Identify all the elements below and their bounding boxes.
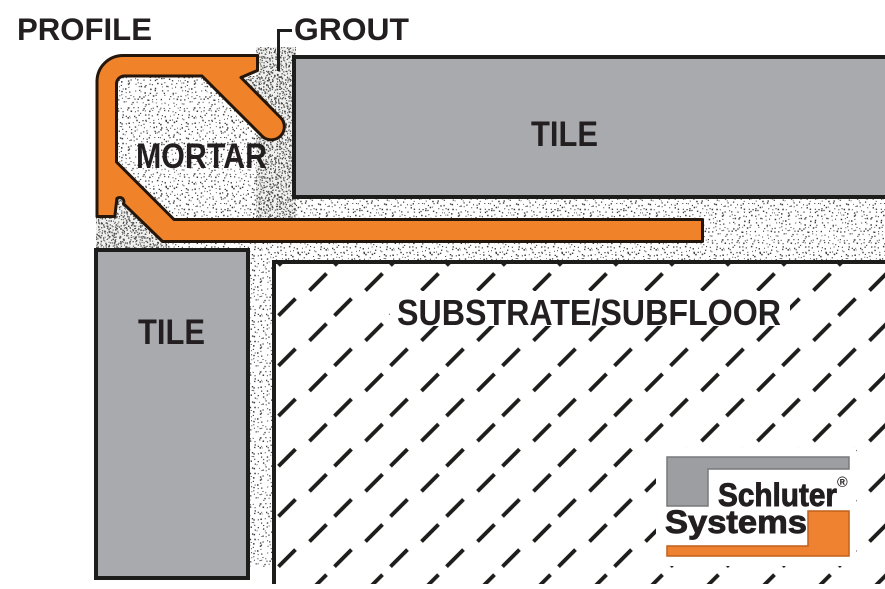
svg-text:MORTAR: MORTAR [136,136,267,176]
svg-text:PROFILE: PROFILE [17,11,152,47]
svg-text:TILE: TILE [531,115,598,154]
svg-text:®: ® [837,475,848,491]
svg-text:GROUT: GROUT [294,11,409,47]
svg-text:TILE: TILE [138,313,205,352]
svg-text:Systems: Systems [665,504,807,540]
svg-text:SUBSTRATE/SUBFLOOR: SUBSTRATE/SUBFLOOR [397,292,781,333]
